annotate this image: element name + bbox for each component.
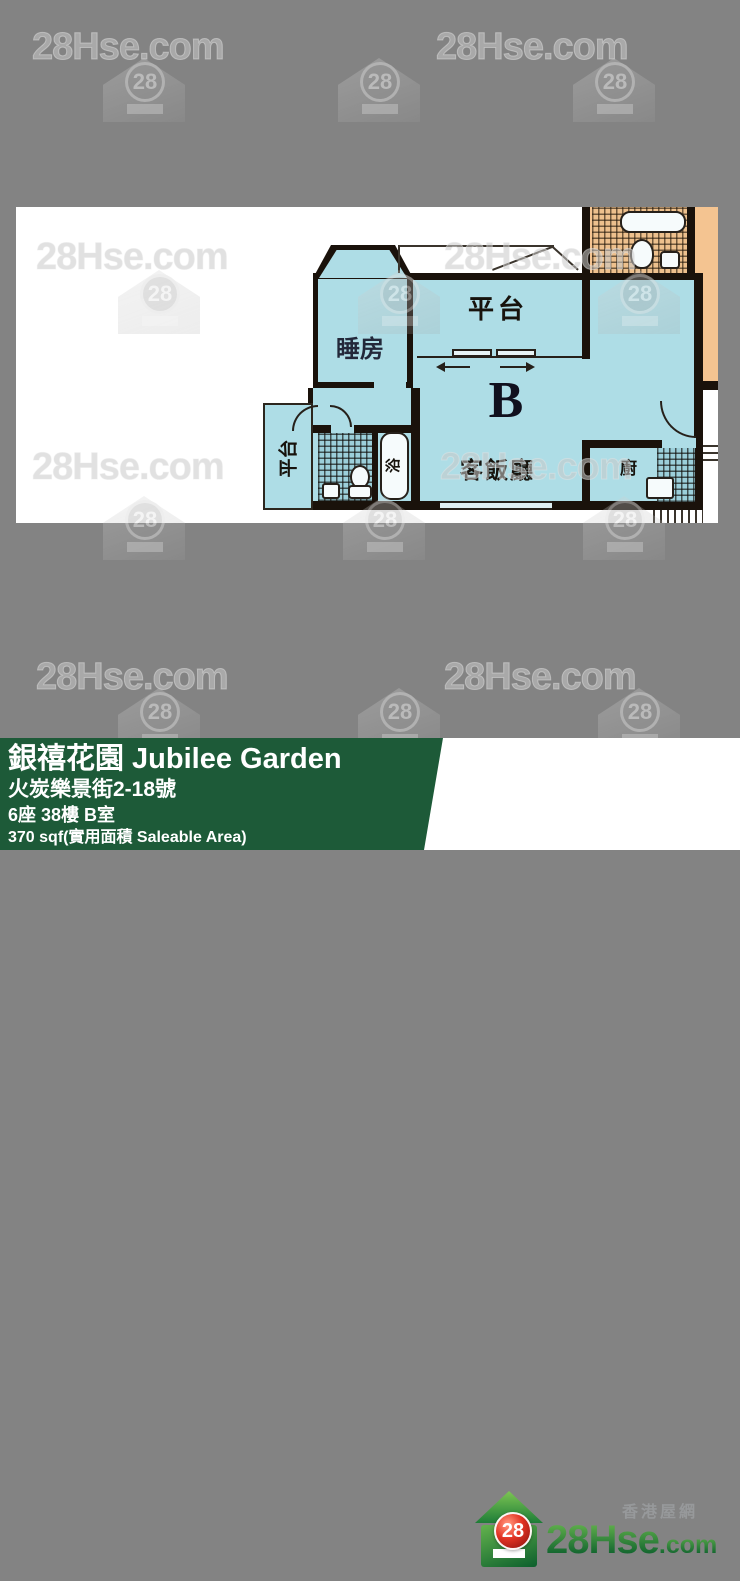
floor-plan-page: { "watermark": { "site": "28Hse.com", "l… xyxy=(0,0,740,850)
watermark-28-badge: 28 xyxy=(380,692,420,732)
watermark-house-door xyxy=(597,104,633,114)
wc-toilet-base xyxy=(348,485,372,499)
slide-arrow-left-head xyxy=(436,362,445,372)
unit-letter: B xyxy=(476,371,536,430)
slide-arrow-right-line xyxy=(500,366,526,368)
living-dining-label: 客飯廳 xyxy=(460,451,535,485)
brand-tagline: 香港屋網 xyxy=(622,1498,698,1522)
watermark-house-logo: 28 xyxy=(573,58,655,122)
kitchen-door-opening xyxy=(662,438,696,448)
adjacent-sink xyxy=(660,251,680,269)
adjacent-bathtub xyxy=(620,211,686,233)
terrace-right-wall xyxy=(582,273,590,359)
watermark-house-icon xyxy=(103,58,185,122)
terrace-outline-h xyxy=(398,245,554,247)
watermark-text: 28Hse.com xyxy=(32,26,224,69)
area-info: 370 sqf(實用面積 Saleable Area) xyxy=(8,827,740,849)
terrace-outline-diag1 xyxy=(551,245,579,271)
wc-basin xyxy=(322,483,340,499)
watermark-house-door xyxy=(362,104,398,114)
living-window xyxy=(440,501,552,510)
bath-label: 浴 xyxy=(382,458,403,473)
watermark-house-door xyxy=(607,542,643,552)
brand-wordmark: 28Hse .com xyxy=(546,1518,717,1563)
floor-plan: BED RM. 浴 平台 廚 平台 xyxy=(16,207,718,523)
stair-line xyxy=(703,452,718,454)
watermark-28-badge: 28 xyxy=(595,62,635,102)
stair-line xyxy=(703,445,718,447)
bottom-bar: 銀禧花園 Jubilee Garden 火炭樂景街2-18號 6座 38樓 B室… xyxy=(0,738,740,850)
watermark-house-icon xyxy=(338,58,420,122)
brand-site-tld: .com xyxy=(659,1531,717,1560)
property-info-band: 銀禧花園 Jubilee Garden 火炭樂景街2-18號 6座 38樓 B室… xyxy=(0,738,740,850)
watermark-house-logo: 28 xyxy=(103,58,185,122)
watermark-text: 28Hse.com xyxy=(436,26,628,69)
unit-info: 6座 38樓 B室 xyxy=(8,803,740,827)
watermark-text: 28Hse.com xyxy=(36,656,228,699)
watermark-house-icon xyxy=(573,58,655,122)
watermark-house-logo: 28 xyxy=(338,58,420,122)
watermark-28-badge: 28 xyxy=(125,62,165,102)
watermark-28-badge: 28 xyxy=(140,692,180,732)
adjacent-toilet xyxy=(630,239,654,269)
wc-bath-divider xyxy=(372,425,378,501)
house-icon-door xyxy=(493,1549,525,1558)
sliding-door-panel xyxy=(452,349,492,357)
terrace-top-label: 平台 xyxy=(468,289,528,326)
terrace-outline-v xyxy=(398,245,400,273)
stair-line xyxy=(703,459,718,461)
kitchen-label: 廚 xyxy=(620,454,637,479)
watermark-28-badge: 28 xyxy=(620,692,660,732)
watermark-28-badge: 28 xyxy=(360,62,400,102)
terrace-outline-diag2 xyxy=(492,245,554,271)
watermark-house-door xyxy=(127,104,163,114)
estate-name: 銀禧花園 Jubilee Garden xyxy=(8,743,740,776)
left-terrace-label: 平台 xyxy=(274,439,301,477)
right-service-strip xyxy=(703,390,718,523)
brand-28-badge: 28 xyxy=(494,1512,532,1550)
bedroom-label: 睡房 xyxy=(336,329,384,364)
watermark-house-door xyxy=(367,542,403,552)
adjacent-bathroom-wall-v xyxy=(687,207,695,277)
watermark-house-door xyxy=(127,542,163,552)
sliding-door-panel xyxy=(496,349,536,357)
estate-address: 火炭樂景街2-18號 xyxy=(8,776,740,803)
brand-logo: 28 28Hse .com 香港屋網 xyxy=(470,1486,730,1581)
kitchen-appliance xyxy=(646,477,674,499)
brand-site-name: 28Hse xyxy=(546,1518,659,1563)
watermark-text: 28Hse.com xyxy=(444,656,636,699)
slide-arrow-left-line xyxy=(444,366,470,368)
